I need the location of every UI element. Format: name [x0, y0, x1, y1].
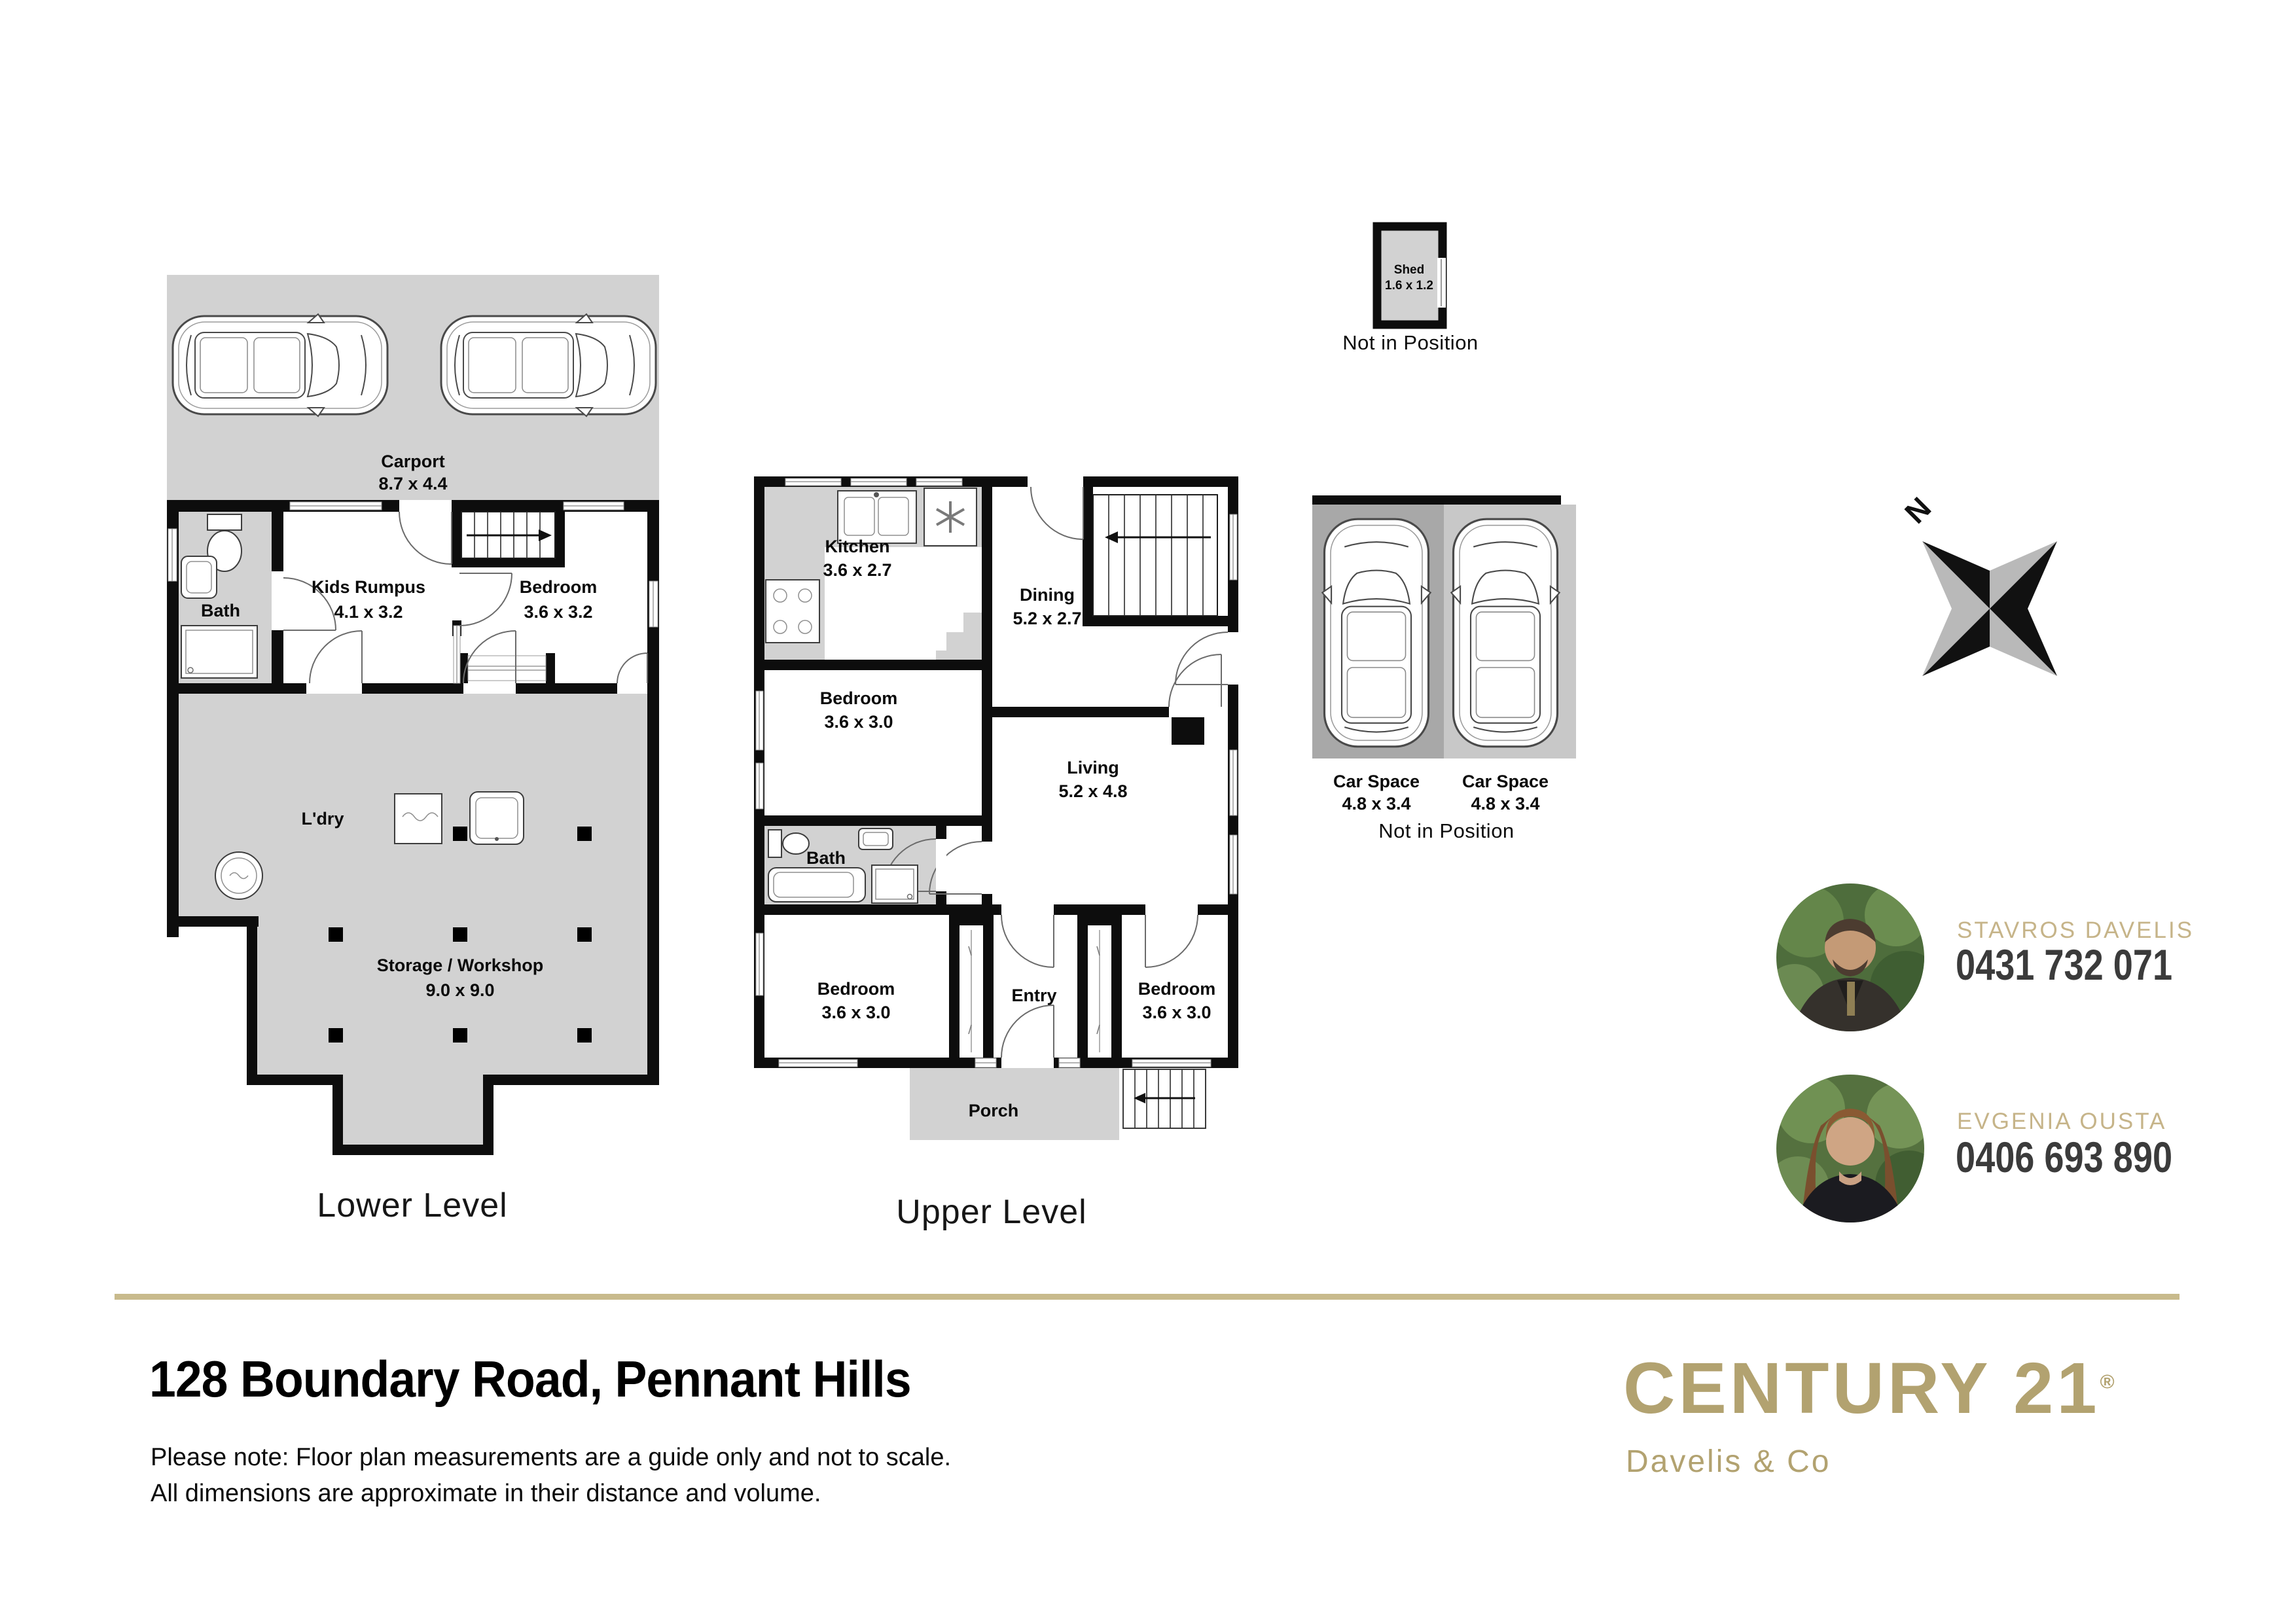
room-label-storage: Storage / Workshop — [377, 955, 544, 975]
shed-not-in-position: Not in Position — [1312, 331, 1509, 355]
agent-avatar-2 — [1775, 1073, 1926, 1224]
century21-wordmark: CENTURY 21 — [1623, 1348, 2100, 1429]
room-label-kitchen: Kitchen — [825, 537, 889, 556]
room-label-shed: Shed — [1394, 263, 1424, 277]
room-label-bath: Bath — [201, 601, 240, 620]
room-label-bedroom1: Bedroom — [820, 688, 898, 708]
upper-level-caption: Upper Level — [792, 1192, 1191, 1232]
lower-level-caption: Lower Level — [216, 1186, 609, 1225]
car-space-1-dims: 4.8 x 3.4 — [1342, 794, 1410, 813]
room-dims-storage: 9.0 x 9.0 — [425, 980, 494, 1000]
lower-level-floorplan: Carport 8.7 x 4.4 Bath Kids Rumpus 4.1 x… — [166, 274, 663, 1164]
registered-mark: ® — [2100, 1371, 2118, 1393]
room-dims-living: 5.2 x 4.8 — [1058, 781, 1127, 801]
washer-icon — [395, 794, 442, 844]
room-dims-dining: 5.2 x 2.7 — [1013, 609, 1081, 628]
century21-office-name: Davelis & Co — [1626, 1444, 1831, 1480]
room-label-bedroom: Bedroom — [520, 577, 598, 597]
carport-car-2 — [441, 314, 656, 416]
compass-north-label: N — [1898, 490, 1937, 529]
car-space-car-1 — [1322, 519, 1430, 747]
room-label-dining: Dining — [1020, 585, 1075, 605]
agent-1-phone: 0431 732 071 — [1956, 940, 2172, 990]
upper-level-floorplan: Kitchen 3.6 x 2.7 Dining 5.2 x 2.7 Bedro… — [753, 475, 1240, 1169]
shower-icon — [872, 865, 918, 903]
car-space-2-label: Car Space — [1462, 772, 1549, 791]
car-space-car-2 — [1451, 519, 1559, 747]
agent-2-name: EVGENIA OUSTA — [1957, 1109, 2166, 1135]
room-dims-kitchen: 3.6 x 2.7 — [823, 560, 891, 580]
stairs-icon — [461, 512, 555, 558]
stairs-icon — [1093, 495, 1217, 616]
carport-car-1 — [173, 314, 387, 416]
room-dims-shed: 1.6 x 1.2 — [1385, 279, 1433, 293]
room-dims-bedroom2: 3.6 x 3.0 — [821, 1003, 890, 1022]
disclaimer-line-2: All dimensions are approximate in their … — [151, 1476, 1132, 1512]
boundary-wall — [1312, 495, 1561, 505]
room-dims-carport: 8.7 x 4.4 — [378, 474, 447, 493]
room-dims-bedroom1: 3.6 x 3.0 — [824, 712, 893, 732]
compass-icon: N — [1885, 488, 2094, 704]
floorplan-page: { "colors": { "floor_gray": "#d2d2d2", "… — [0, 0, 2296, 1623]
car-space-1-label: Car Space — [1333, 772, 1420, 791]
room-label-bedroom2: Bedroom — [817, 979, 895, 999]
agent-avatar-1 — [1775, 882, 1926, 1033]
century21-logo: CENTURY 21® — [1623, 1347, 2118, 1430]
room-label-bedroom3: Bedroom — [1138, 979, 1216, 999]
room-label-upper-bath: Bath — [806, 848, 846, 868]
disclaimer-line-1: Please note: Floor plan measurements are… — [151, 1440, 1132, 1476]
property-address: 128 Boundary Road, Pennant Hills — [149, 1349, 911, 1409]
disclaimer-note: Please note: Floor plan measurements are… — [151, 1440, 1132, 1512]
porch-steps-icon — [1123, 1069, 1206, 1128]
shed-plan: Shed 1.6 x 1.2 — [1372, 221, 1448, 330]
room-label-entry: Entry — [1011, 986, 1056, 1005]
footer-divider — [115, 1294, 2179, 1300]
room-dims-bedroom: 3.6 x 3.2 — [524, 602, 592, 622]
car-spaces-not-in-position: Not in Position — [1348, 819, 1545, 843]
car-space-2-dims: 4.8 x 3.4 — [1471, 794, 1539, 813]
stove-icon — [766, 580, 819, 643]
sink-icon — [859, 829, 893, 849]
room-label-rumpus: Kids Rumpus — [312, 577, 425, 597]
room-label-laundry: L'dry — [302, 809, 344, 829]
room-label-living: Living — [1067, 758, 1119, 777]
toilet-icon — [207, 514, 242, 530]
room-dims-bedroom3: 3.6 x 3.0 — [1142, 1003, 1211, 1022]
room-label-carport: Carport — [381, 452, 445, 471]
room-dims-rumpus: 4.1 x 3.2 — [334, 602, 403, 622]
agent-2-phone: 0406 693 890 — [1956, 1132, 2172, 1182]
toilet-icon — [768, 830, 781, 857]
room-label-porch: Porch — [969, 1101, 1019, 1120]
bathtub-icon — [768, 868, 865, 902]
car-spaces-plan: Car Space 4.8 x 3.4 Car Space 4.8 x 3.4 — [1311, 494, 1581, 821]
